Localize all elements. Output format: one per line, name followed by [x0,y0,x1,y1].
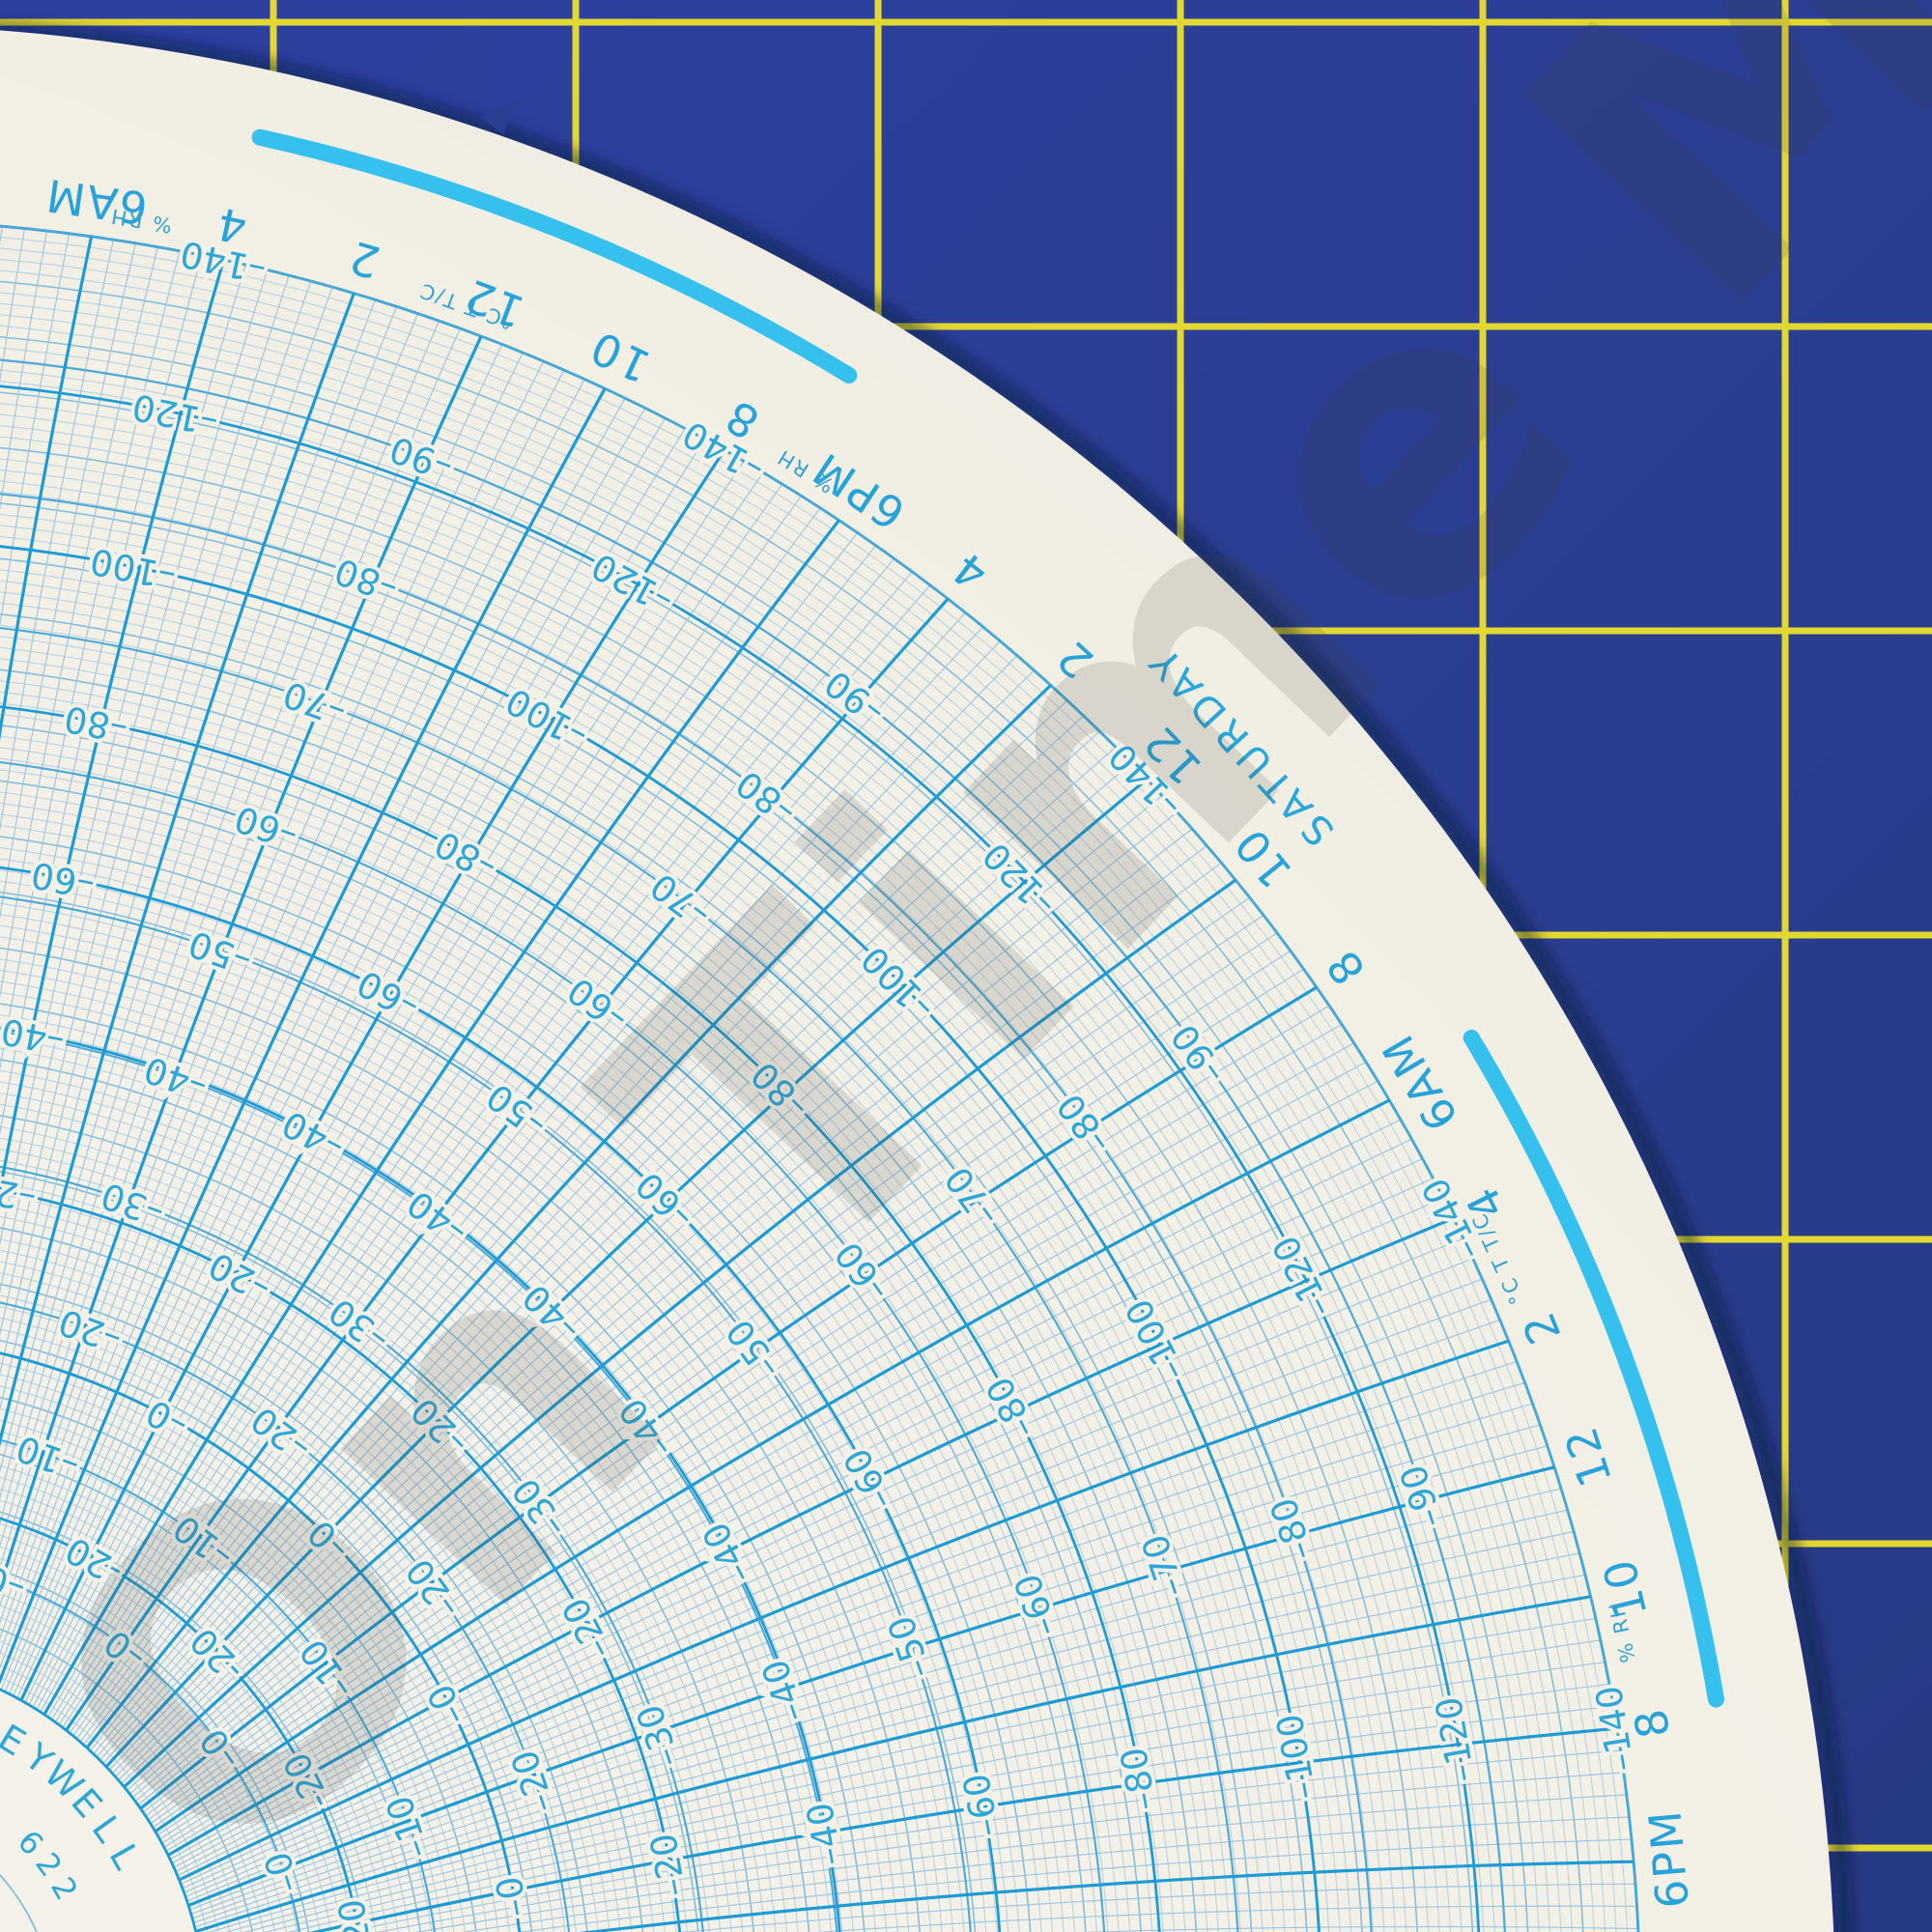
scale-numeral: –0 [488,1873,536,1920]
photo-scene: –140–120–100–80–60–40–20–0-20–90–80–70–6… [0,0,1932,1932]
time-label: 6PM [1638,1807,1699,1911]
